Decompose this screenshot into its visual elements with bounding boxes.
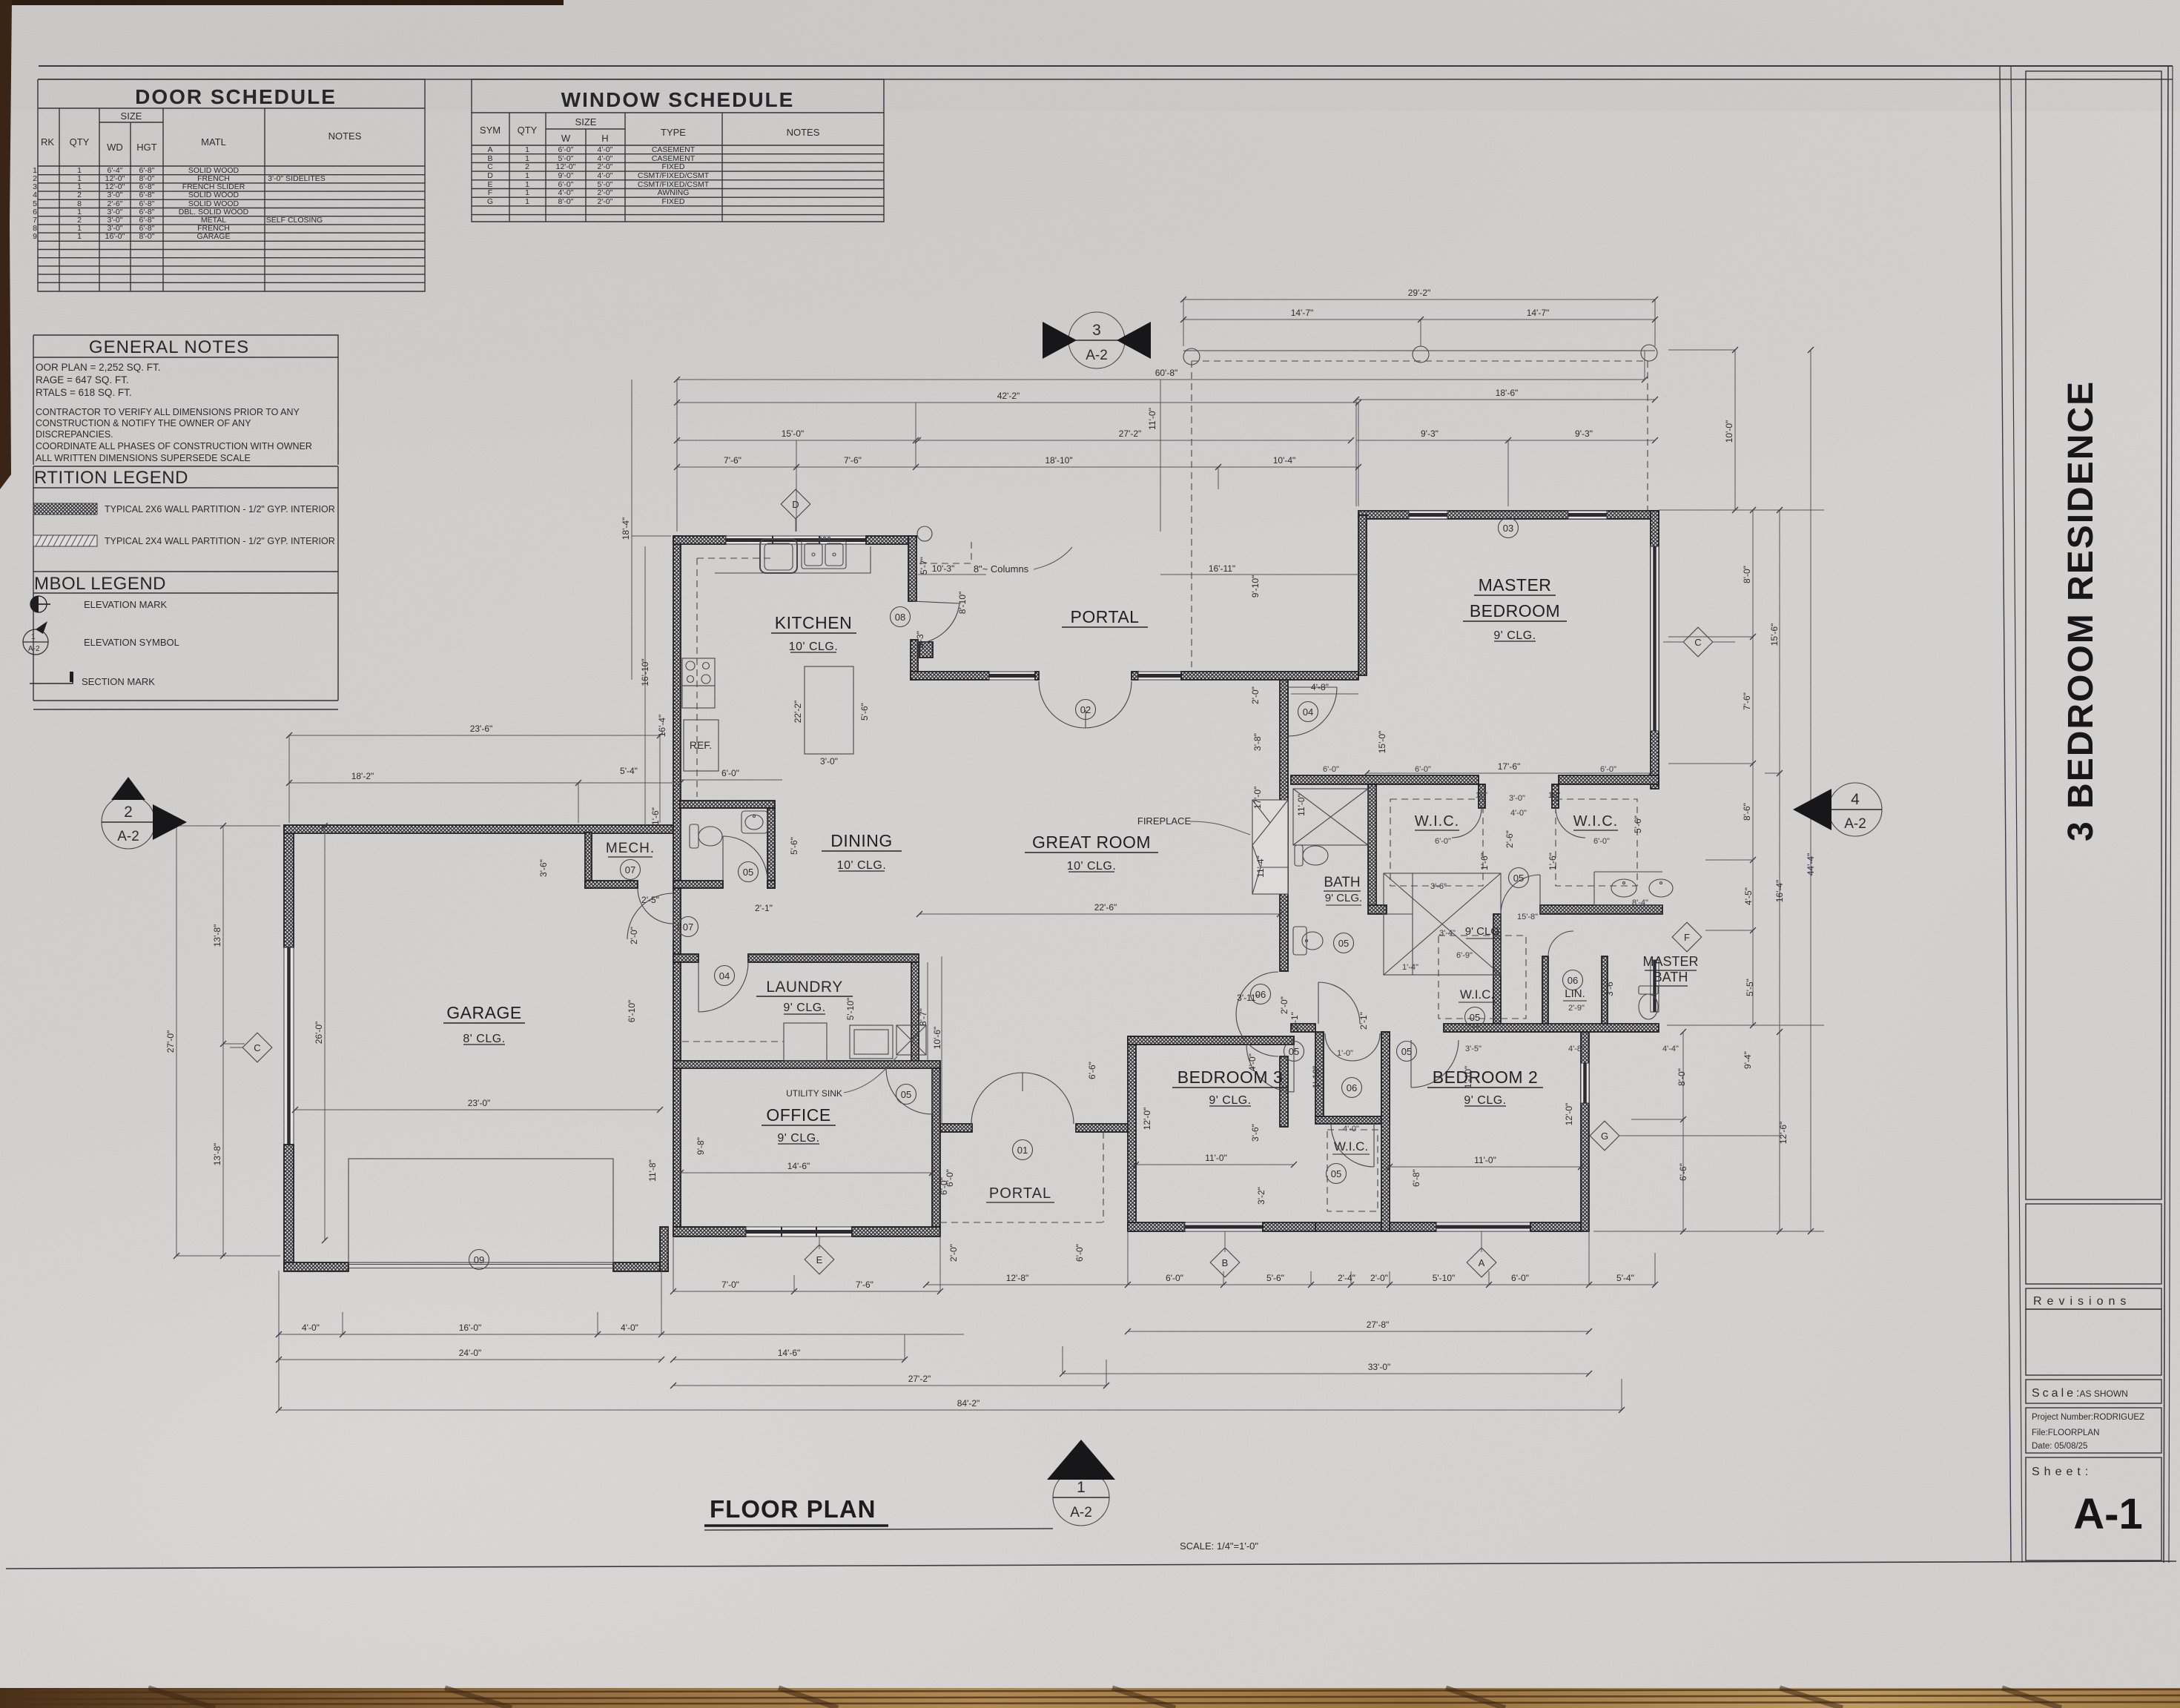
svg-text:FLOOR PLAN: FLOOR PLAN (710, 1495, 876, 1523)
svg-text:16'-11": 16'-11" (1209, 563, 1235, 574)
svg-text:NOTES: NOTES (787, 127, 820, 138)
svg-text:7'-0": 7'-0" (721, 1280, 739, 1290)
svg-text:B: B (1222, 1257, 1229, 1268)
svg-text:A-2: A-2 (1844, 816, 1866, 832)
svg-text:W: W (561, 133, 571, 144)
svg-text:15'-6": 15'-6" (1769, 623, 1780, 646)
svg-text:4'-0": 4'-0" (558, 188, 574, 197)
svg-text:42'-2": 42'-2" (997, 391, 1020, 401)
svg-text:05: 05 (1331, 1168, 1341, 1179)
svg-text:6'-0": 6'-0" (1074, 1244, 1085, 1262)
svg-text:RTITION LEGEND: RTITION LEGEND (34, 468, 188, 488)
svg-text:27'-8": 27'-8" (1367, 1320, 1390, 1330)
svg-text:5'-6": 5'-6" (1266, 1273, 1284, 1283)
svg-text:10'-6": 10'-6" (932, 1027, 942, 1050)
svg-text:REF.: REF. (690, 739, 712, 751)
svg-text:6'-8": 6'-8" (1411, 1169, 1421, 1187)
svg-text:5'-10": 5'-10" (1433, 1273, 1456, 1283)
svg-text:W.I.C.: W.I.C. (1334, 1139, 1368, 1153)
svg-text:7'-6": 7'-6" (724, 455, 741, 466)
svg-text:6'-0": 6'-0" (558, 145, 574, 154)
svg-text:17'-0": 17'-0" (1252, 787, 1263, 810)
svg-text:1: 1 (1077, 1479, 1086, 1496)
svg-text:06: 06 (1347, 1082, 1357, 1093)
svg-text:2'-0": 2'-0" (598, 188, 613, 197)
svg-text:CSMT/FIXED/CSMT: CSMT/FIXED/CSMT (638, 171, 710, 180)
svg-text:4: 4 (33, 191, 37, 199)
svg-text:PORTAL: PORTAL (989, 1185, 1051, 1202)
svg-text:13'-8": 13'-8" (212, 924, 222, 947)
svg-text:1'-4": 1'-4" (1402, 963, 1418, 972)
svg-text:14'-7": 14'-7" (1527, 308, 1550, 318)
svg-text:1: 1 (525, 145, 529, 154)
svg-text:27'-0": 27'-0" (165, 1030, 176, 1053)
svg-text:1: 1 (525, 171, 529, 180)
svg-text:08: 08 (895, 612, 905, 623)
svg-text:04: 04 (719, 970, 730, 982)
svg-text:05: 05 (901, 1089, 911, 1100)
svg-text:KITCHEN: KITCHEN (775, 613, 852, 632)
svg-text:1'-0": 1'-0" (1337, 1049, 1353, 1058)
svg-text:2'-4": 2'-4" (1338, 1273, 1355, 1283)
svg-text:G: G (1601, 1131, 1608, 1142)
svg-text:12'-6": 12'-6" (1778, 1122, 1788, 1145)
svg-text:14'-6": 14'-6" (787, 1161, 810, 1171)
svg-text:60'-8": 60'-8" (1155, 368, 1178, 378)
svg-text:10'-3": 10'-3" (932, 563, 955, 574)
svg-text:D: D (487, 171, 493, 180)
svg-text:1'-6": 1'-6" (1479, 853, 1490, 870)
svg-text:10' CLG.: 10' CLG. (789, 640, 839, 653)
svg-text:E: E (816, 1254, 823, 1265)
svg-text:D: D (792, 499, 799, 510)
svg-text:LAUNDRY: LAUNDRY (766, 979, 842, 996)
svg-text:SOLID WOOD: SOLID WOOD (188, 191, 240, 199)
svg-text:6'-0": 6'-0" (1415, 765, 1431, 774)
svg-text:3'-0": 3'-0" (1509, 794, 1525, 803)
svg-text:TYPICAL 2X4 WALL PARTITION - 1: TYPICAL 2X4 WALL PARTITION - 1/2" GYP. I… (105, 536, 335, 546)
svg-text:CONTRACTOR TO VERIFY ALL DIMEN: CONTRACTOR TO VERIFY ALL DIMENSIONS PRIO… (36, 407, 300, 417)
svg-text:2: 2 (525, 162, 529, 171)
svg-text:05: 05 (1289, 1046, 1299, 1057)
svg-text:LIN.: LIN. (1565, 987, 1585, 1000)
svg-text:18'-10": 18'-10" (1045, 455, 1072, 466)
svg-text:5'-6": 5'-6" (789, 837, 799, 855)
svg-text:GENERAL NOTES: GENERAL NOTES (89, 337, 249, 357)
svg-text:2'-1": 2'-1" (1289, 1012, 1300, 1030)
svg-text:NOTES: NOTES (328, 130, 362, 142)
svg-text:8'-0": 8'-0" (558, 197, 574, 206)
svg-text:DISCREPANCIES.: DISCREPANCIES. (36, 429, 113, 440)
svg-text:8'-6": 8'-6" (1742, 803, 1752, 821)
svg-text:6'-0": 6'-0" (1600, 765, 1616, 774)
svg-text:2'-0": 2'-0" (598, 162, 613, 171)
svg-text:10' CLG.: 10' CLG. (1067, 860, 1117, 873)
svg-text:GARAGE: GARAGE (446, 1003, 521, 1022)
svg-text:2'-0": 2'-0" (598, 197, 613, 206)
svg-text:8'-0": 8'-0" (1677, 1068, 1687, 1086)
svg-text:SIZE: SIZE (575, 116, 597, 128)
svg-text:3'-6": 3'-6" (1605, 979, 1615, 996)
svg-text:2'-0": 2'-0" (948, 1244, 959, 1262)
svg-text:1'-6": 1'-6" (650, 807, 661, 825)
svg-text:3'-0": 3'-0" (108, 191, 123, 199)
svg-text:05: 05 (1513, 873, 1524, 884)
svg-text:1'-10": 1'-10" (1463, 1066, 1473, 1089)
svg-text:14'-6": 14'-6" (778, 1348, 801, 1358)
svg-text:15'-0": 15'-0" (1377, 731, 1387, 754)
svg-text:11'-4": 11'-4" (1255, 855, 1266, 878)
svg-text:8' CLG.: 8' CLG. (463, 1033, 505, 1045)
svg-text:BATH: BATH (1654, 970, 1688, 984)
svg-text:9' CLG.: 9' CLG. (1493, 629, 1536, 642)
svg-text:26'-0": 26'-0" (314, 1022, 324, 1045)
svg-text:H: H (601, 133, 608, 144)
svg-text:G: G (487, 197, 493, 206)
svg-text:FIREPLACE: FIREPLACE (1137, 815, 1192, 827)
svg-text:HGT: HGT (136, 142, 157, 153)
svg-text:C: C (1694, 637, 1701, 648)
svg-text:4: 4 (1851, 791, 1860, 808)
svg-text:01: 01 (1017, 1145, 1028, 1156)
svg-text:23'-6": 23'-6" (470, 724, 493, 734)
svg-text:05: 05 (1470, 1012, 1480, 1023)
svg-text:ALL WRITTEN DIMENSIONS SUPERSE: ALL WRITTEN DIMENSIONS SUPERSEDE SCALE (36, 453, 251, 463)
svg-text:WINDOW SCHEDULE: WINDOW SCHEDULE (561, 88, 795, 111)
svg-text:16'-10": 16'-10" (640, 658, 650, 686)
svg-text:3'-8": 3'-8" (1252, 733, 1263, 751)
svg-text:24'-0": 24'-0" (459, 1348, 482, 1358)
svg-text:A-2: A-2 (28, 645, 40, 653)
svg-text:5'-7": 5'-7" (919, 557, 929, 575)
svg-text:27'-2": 27'-2" (908, 1374, 931, 1384)
svg-text:File:FLOORPLAN: File:FLOORPLAN (2032, 1429, 2099, 1437)
svg-text:16'-0": 16'-0" (459, 1323, 482, 1333)
svg-text:7'-6": 7'-6" (844, 455, 862, 466)
svg-text:ELEVATION SYMBOL: ELEVATION SYMBOL (84, 637, 179, 648)
svg-text:9'-4": 9'-4" (1743, 1051, 1753, 1069)
svg-text:2'-0": 2'-0" (1279, 996, 1289, 1014)
svg-text:8'-0": 8'-0" (1742, 566, 1752, 583)
svg-text:MASTER: MASTER (1479, 575, 1552, 595)
svg-text:SECTION MARK: SECTION MARK (82, 676, 155, 687)
svg-text:8'-10": 8'-10" (957, 592, 968, 615)
svg-text:11'-8": 11'-8" (647, 1159, 658, 1182)
svg-text:18'-2": 18'-2" (351, 771, 374, 781)
svg-text:BEDROOM 3: BEDROOM 3 (1177, 1067, 1284, 1087)
svg-text:A-2: A-2 (1086, 348, 1108, 363)
svg-text:9'-3": 9'-3" (1421, 428, 1439, 439)
svg-text:18'-6": 18'-6" (1496, 388, 1519, 398)
svg-text:5'-6": 5'-6" (859, 703, 870, 721)
svg-text:2'-1": 2'-1" (1358, 1012, 1369, 1030)
svg-text:BEDROOM 2: BEDROOM 2 (1433, 1067, 1539, 1087)
svg-text:16'-0": 16'-0" (105, 232, 125, 241)
svg-text:12'-0": 12'-0" (556, 162, 576, 171)
svg-text:9'-10": 9'-10" (1250, 575, 1261, 598)
svg-text:5'-4": 5'-4" (620, 766, 638, 776)
svg-text:15'-0": 15'-0" (782, 428, 805, 439)
svg-text:3'-6": 3'-6" (1250, 1124, 1261, 1142)
svg-text:MASTER: MASTER (1642, 954, 1698, 969)
svg-text:MECH.: MECH. (606, 841, 655, 856)
svg-text:Scale:AS SHOWN: Scale:AS SHOWN (2032, 1387, 2128, 1400)
svg-text:RAGE = 647 SQ. FT.: RAGE = 647 SQ. FT. (36, 374, 129, 385)
svg-text:27'-2": 27'-2" (1119, 428, 1142, 439)
svg-text:9' CLG.: 9' CLG. (1325, 892, 1362, 904)
svg-text:Revisions: Revisions (2033, 1295, 2131, 1308)
svg-text:SCALE: 1/4"=1'-0": SCALE: 1/4"=1'-0" (1180, 1540, 1258, 1552)
svg-text:6'-0": 6'-0" (1166, 1273, 1183, 1283)
svg-text:CASEMENT: CASEMENT (652, 145, 696, 154)
svg-text:3'-0": 3'-0" (820, 756, 838, 767)
svg-text:44'-4": 44'-4" (1806, 853, 1816, 876)
svg-text:15'-8": 15'-8" (1517, 913, 1538, 921)
svg-text:Project Number:RODRIGUEZ: Project Number:RODRIGUEZ (2032, 1413, 2144, 1422)
svg-text:8'-7": 8'-7" (918, 1008, 928, 1026)
svg-text:03: 03 (1503, 523, 1513, 534)
svg-text:QTY: QTY (70, 136, 90, 148)
svg-text:BATH: BATH (1324, 875, 1360, 890)
svg-text:11'-0": 11'-0" (1474, 1155, 1496, 1165)
svg-text:3 BEDROOM RESIDENCE: 3 BEDROOM RESIDENCE (2061, 380, 2101, 841)
svg-text:9' CLG.: 9' CLG. (777, 1132, 819, 1145)
svg-text:2'-0": 2'-0" (1370, 1273, 1388, 1283)
svg-text:1: 1 (31, 633, 36, 641)
svg-text:Date: 05/08/25: Date: 05/08/25 (2032, 1442, 2087, 1451)
svg-text:2'-0": 2'-0" (1250, 686, 1261, 704)
svg-text:1'-6": 1'-6" (1548, 853, 1558, 870)
svg-text:6'-0": 6'-0" (1435, 837, 1451, 846)
svg-text:W.I.C.: W.I.C. (1415, 813, 1459, 830)
svg-text:2'-5": 2'-5" (641, 895, 659, 905)
svg-text:9' CLG.: 9' CLG. (1464, 1094, 1506, 1107)
svg-text:TYPICAL 2X6 WALL PARTITION -: TYPICAL 2X6 WALL PARTITION - 1/2" GYP. I… (105, 504, 335, 514)
svg-text:QTY: QTY (518, 125, 538, 136)
svg-text:4'-4": 4'-4" (1662, 1045, 1679, 1053)
svg-text:9' CLG.: 9' CLG. (1465, 925, 1502, 938)
svg-text:4'-0": 4'-0" (1247, 1053, 1258, 1071)
svg-text:SYM: SYM (480, 125, 501, 136)
svg-text:11'-0": 11'-0" (1147, 408, 1157, 430)
svg-text:OOR PLAN = 2,252 SQ. FT.: OOR PLAN = 2,252 SQ. FT. (36, 362, 160, 373)
svg-text:3'-5": 3'-5" (1465, 1045, 1482, 1053)
svg-text:3'-6": 3'-6" (1430, 882, 1447, 891)
svg-text:FIXED: FIXED (662, 162, 685, 171)
svg-text:8"~ Columns: 8"~ Columns (974, 563, 1029, 575)
svg-text:4'-8": 4'-8" (1568, 1045, 1585, 1053)
svg-text:ELEVATION MARK: ELEVATION MARK (84, 599, 168, 610)
svg-text:05: 05 (1401, 1046, 1412, 1057)
svg-text:W.I.C.: W.I.C. (1573, 813, 1618, 830)
svg-text:12'-0": 12'-0" (1564, 1103, 1574, 1126)
svg-text:3'-3": 3'-3" (915, 631, 925, 649)
svg-text:11'-0": 11'-0" (1205, 1153, 1227, 1163)
svg-text:2'-0": 2'-0" (629, 927, 639, 944)
svg-text:C: C (487, 162, 493, 171)
svg-text:UTILITY SINK: UTILITY SINK (786, 1088, 842, 1099)
svg-text:SIZE: SIZE (121, 110, 142, 122)
svg-text:10": 10" (1548, 791, 1560, 800)
svg-text:05: 05 (1338, 938, 1349, 949)
svg-text:CONSTRUCTION & NOTIFY THE OWNE: CONSTRUCTION & NOTIFY THE OWNER OF ANY (36, 418, 251, 428)
svg-text:23'-0": 23'-0" (468, 1098, 491, 1108)
svg-text:3'-0" SIDELITES: 3'-0" SIDELITES (268, 174, 326, 183)
svg-text:5'-5": 5'-5" (1745, 979, 1755, 996)
svg-text:9' CLG.: 9' CLG. (783, 1002, 825, 1014)
svg-text:05: 05 (743, 867, 753, 878)
svg-text:OFFICE: OFFICE (766, 1105, 830, 1125)
svg-text:5'-6": 5'-6" (1633, 815, 1643, 833)
svg-text:A-2: A-2 (1070, 1505, 1092, 1520)
svg-text:12'-8": 12'-8" (1006, 1273, 1029, 1283)
svg-text:3'-2": 3'-2" (1256, 1187, 1266, 1205)
svg-text:4'-0": 4'-0" (1510, 809, 1527, 818)
svg-text:6'-8": 6'-8" (139, 191, 155, 199)
svg-text:07: 07 (683, 921, 693, 933)
svg-text:F: F (1684, 932, 1690, 943)
svg-text:2: 2 (124, 804, 133, 821)
svg-text:11'-0": 11'-0" (1296, 794, 1307, 816)
svg-text:2: 2 (77, 191, 82, 199)
svg-text:1: 1 (525, 188, 529, 197)
svg-text:16'-4": 16'-4" (1774, 880, 1785, 903)
svg-text:1'-10": 1'-10" (1311, 1066, 1321, 1089)
svg-text:84'-2": 84'-2" (957, 1398, 980, 1409)
svg-text:COORDINATE ALL PHASES OF CONST: COORDINATE ALL PHASES OF CONSTRUCTION WI… (36, 441, 312, 451)
svg-text:WD: WD (107, 142, 123, 153)
svg-text:A-2: A-2 (117, 829, 139, 844)
svg-text:4'-0": 4'-0" (1343, 1125, 1359, 1133)
svg-text:6'-0": 6'-0" (1511, 1273, 1529, 1283)
svg-text:2'-1": 2'-1" (755, 903, 773, 913)
svg-text:9'-0": 9'-0" (558, 171, 574, 180)
svg-text:W.I.C.: W.I.C. (1460, 987, 1494, 1002)
svg-text:GREAT ROOM: GREAT ROOM (1032, 833, 1151, 852)
svg-text:A: A (1479, 1257, 1485, 1268)
svg-text:9: 9 (33, 232, 37, 241)
svg-text:A-1: A-1 (2073, 1490, 2142, 1538)
svg-text:2'-6": 2'-6" (1504, 830, 1515, 848)
svg-text:4'-0": 4'-0" (302, 1323, 320, 1333)
svg-text:2'-9": 2'-9" (1568, 1004, 1585, 1013)
svg-text:MBOL LEGEND: MBOL LEGEND (34, 574, 166, 594)
svg-text:3'-6": 3'-6" (538, 859, 549, 877)
svg-text:1: 1 (525, 197, 529, 206)
svg-text:4'-0": 4'-0" (621, 1323, 638, 1333)
svg-text:RTALS = 618 SQ. FT.: RTALS = 618 SQ. FT. (36, 387, 132, 398)
svg-text:9'-3": 9'-3" (1575, 428, 1593, 439)
svg-text:5'-4": 5'-4" (1616, 1273, 1634, 1283)
svg-text:F: F (488, 188, 492, 197)
svg-text:RK: RK (41, 136, 54, 148)
svg-text:4'-0": 4'-0" (598, 171, 613, 180)
svg-text:10' CLG.: 10' CLG. (837, 859, 887, 872)
svg-text:13'-8": 13'-8" (212, 1143, 222, 1166)
svg-text:6'-0": 6'-0" (1323, 765, 1339, 774)
svg-text:9'-8": 9'-8" (696, 1137, 706, 1155)
svg-text:02: 02 (1080, 704, 1091, 715)
svg-text:GARAGE: GARAGE (197, 232, 231, 241)
svg-text:AWNING: AWNING (658, 188, 690, 197)
svg-text:14'-7": 14'-7" (1291, 308, 1314, 318)
svg-text:04: 04 (1303, 706, 1313, 718)
svg-text:7'-6": 7'-6" (856, 1280, 873, 1290)
svg-text:Sheet:: Sheet: (2032, 1466, 2093, 1478)
svg-text:6'-6": 6'-6" (1678, 1163, 1688, 1181)
svg-text:MATL: MATL (201, 136, 226, 148)
svg-text:A: A (487, 145, 492, 154)
svg-text:4'-0": 4'-0" (598, 145, 613, 154)
svg-text:DINING: DINING (830, 831, 893, 850)
svg-text:7'-6": 7'-6" (1742, 692, 1752, 710)
svg-text:DOOR SCHEDULE: DOOR SCHEDULE (135, 85, 337, 108)
svg-text:4'-8": 4'-8" (1311, 682, 1329, 692)
svg-text:1: 1 (77, 232, 82, 241)
svg-text:TYPE: TYPE (661, 127, 686, 138)
svg-text:10": 10" (1476, 791, 1487, 800)
svg-text:PORTAL: PORTAL (1071, 607, 1140, 626)
svg-text:3: 3 (1092, 322, 1101, 339)
svg-text:17'-6": 17'-6" (1498, 761, 1521, 772)
svg-text:C: C (254, 1042, 260, 1053)
svg-text:06: 06 (1568, 975, 1578, 986)
svg-text:22'-2": 22'-2" (793, 701, 803, 724)
svg-text:5'-10": 5'-10" (845, 998, 856, 1021)
svg-text:3'-11": 3'-11" (1237, 993, 1259, 1003)
svg-text:FIXED: FIXED (662, 197, 685, 206)
svg-text:8'-4": 8'-4" (1632, 898, 1648, 907)
svg-text:9' CLG.: 9' CLG. (1209, 1094, 1251, 1107)
svg-text:6'-0": 6'-0" (1593, 837, 1610, 846)
svg-text:12'-0": 12'-0" (1142, 1108, 1152, 1131)
svg-text:29'-2": 29'-2" (1408, 288, 1431, 298)
svg-text:8'-0": 8'-0" (139, 232, 155, 241)
svg-text:10'-4": 10'-4" (1273, 455, 1296, 466)
svg-text:BEDROOM: BEDROOM (1470, 601, 1560, 620)
svg-text:22'-6": 22'-6" (1094, 902, 1117, 913)
svg-text:4'-5": 4'-5" (1743, 887, 1754, 905)
svg-text:33'-0": 33'-0" (1368, 1362, 1391, 1372)
svg-text:6'-6": 6'-6" (1087, 1062, 1097, 1079)
svg-text:18'-4": 18'-4" (621, 517, 631, 540)
svg-text:6'-0": 6'-0" (721, 768, 739, 778)
svg-text:09: 09 (474, 1254, 484, 1265)
svg-text:6'-0": 6'-0" (939, 1177, 949, 1195)
svg-text:07: 07 (625, 864, 635, 875)
svg-text:6'-9": 6'-9" (1456, 951, 1473, 960)
svg-text:10'-0": 10'-0" (1724, 420, 1734, 443)
svg-text:6'-10": 6'-10" (627, 1000, 637, 1023)
svg-text:SELF CLOSING: SELF CLOSING (266, 216, 323, 225)
svg-text:3'-4": 3'-4" (1439, 929, 1456, 938)
